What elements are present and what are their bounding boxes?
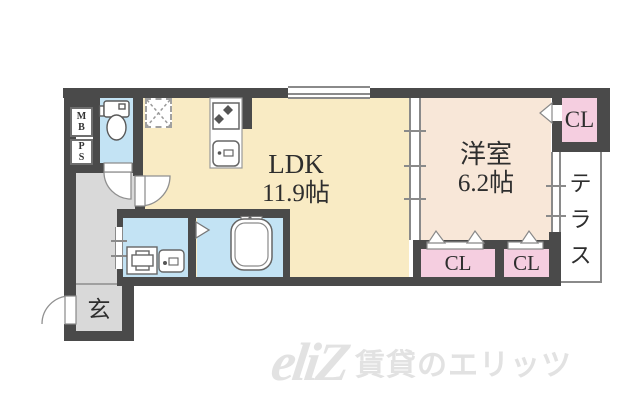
refrigerator-space bbox=[145, 98, 172, 128]
floor-plan: M B P S bbox=[0, 0, 640, 416]
wall-closet-row-left bbox=[413, 249, 421, 277]
closet-top-label: CL bbox=[562, 98, 597, 142]
window-terrace-door bbox=[551, 152, 561, 232]
terrace-edge-bottom bbox=[561, 281, 602, 283]
ldk-name: LDK bbox=[216, 150, 376, 180]
western-room-name: 洋室 bbox=[421, 141, 551, 170]
window-top bbox=[288, 86, 370, 99]
watermark-logo: eliZ bbox=[268, 337, 350, 388]
terrace-char: テ bbox=[561, 166, 600, 202]
wall-bath-partition bbox=[188, 218, 196, 277]
wall-bath-top bbox=[117, 209, 290, 218]
window-washroom bbox=[115, 227, 123, 269]
pipe-shaft-box: P S bbox=[70, 139, 93, 165]
terrace-char: ラ bbox=[561, 202, 600, 238]
wall-closet-row-mid bbox=[495, 249, 504, 277]
wall-bottom bbox=[117, 277, 561, 286]
wall-closet-row-right bbox=[549, 232, 561, 277]
closet-bottom-2-label: CL bbox=[504, 249, 549, 277]
entrance-door bbox=[42, 296, 76, 324]
pipe-shaft-letter: S bbox=[79, 152, 85, 164]
western-room-label: 洋室 6.2帖 bbox=[421, 141, 551, 198]
washroom-window-tick bbox=[111, 240, 127, 242]
wall-toilet-left bbox=[93, 98, 100, 173]
watermark-text: 賃貸のエリッツ bbox=[355, 351, 572, 388]
wall-bath-right bbox=[283, 218, 290, 277]
toilet-room-floor bbox=[100, 98, 133, 163]
hallway-lower-floor bbox=[76, 209, 117, 283]
wall-closet-top-bottom bbox=[552, 142, 610, 152]
sliding-door-tick bbox=[404, 130, 426, 132]
hallway-upper-floor bbox=[76, 173, 135, 209]
sliding-door-ldk-western bbox=[409, 98, 421, 240]
wall-kitchen-stub bbox=[240, 88, 252, 129]
wall-closet-top-left-a bbox=[552, 98, 562, 105]
meter-box: M B bbox=[70, 107, 93, 137]
terrace-label: テ ラ ス bbox=[561, 166, 600, 274]
bathroom-floor bbox=[197, 218, 283, 277]
terrace-edge-right bbox=[600, 152, 602, 283]
meter-box-letter: M bbox=[77, 111, 86, 123]
pipe-shaft-letter: P bbox=[78, 141, 84, 153]
ldk-label: LDK 11.9帖 bbox=[216, 150, 376, 208]
terrace-char: ス bbox=[561, 238, 600, 274]
washroom-floor bbox=[123, 218, 188, 277]
ldk-area: 11.9帖 bbox=[216, 180, 376, 209]
washroom-window-tick bbox=[111, 255, 127, 257]
wall-toilet-bottom bbox=[93, 163, 143, 173]
wall-closet-top-left-b bbox=[552, 121, 562, 142]
western-room-area: 6.2帖 bbox=[421, 170, 551, 199]
wall-entrance-right bbox=[122, 283, 134, 341]
entrance-label: 玄 bbox=[76, 285, 122, 329]
wall-closet-row-top bbox=[413, 240, 561, 249]
closet-bottom-1-label: CL bbox=[421, 249, 495, 277]
meter-box-letter: B bbox=[78, 122, 85, 134]
watermark: eliZ 賃貸のエリッツ bbox=[272, 328, 612, 388]
